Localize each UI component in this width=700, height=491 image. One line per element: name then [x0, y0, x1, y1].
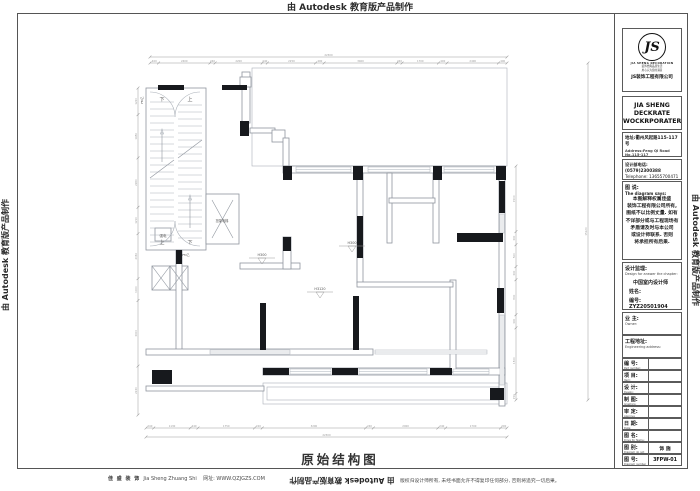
footer-brand: 佳 盛 装 饰 Jia Sheng Zhuang Shi 网址: WWW.QZJ… [108, 475, 265, 482]
dim-value: 240 [262, 59, 267, 63]
cad-sheet: 由 Autodesk 教育版产品制作 由 Autodesk 教育版产品制作 由 … [0, 0, 700, 491]
dim-value: 3000 [134, 330, 138, 337]
notice-line: 本图解释权属佳盛 [625, 196, 679, 203]
column [496, 166, 506, 180]
title-block: JS JIA SHENG DECORATION 装饰经典品质生活 用心只为您的满… [620, 13, 686, 469]
column [283, 166, 292, 180]
owner-cn: 业 主: [625, 315, 679, 322]
plan-label: 上 [159, 239, 164, 246]
row-value-cell [649, 431, 681, 441]
titleblock-row: 制 图:Graphics: [622, 394, 682, 406]
eng-addr-cn: 工程地址: [625, 338, 679, 345]
column [430, 368, 452, 375]
row-label-cn: 项 目: [624, 372, 647, 379]
column [457, 233, 503, 242]
notice-text: 本图解释权属佳盛装饰工程有限公司所有,图纸不以比例丈量. 如有不详部分或与工程现… [625, 196, 679, 246]
level-label: H300 [347, 241, 356, 245]
column [490, 388, 504, 400]
company-line-2: WOCKRPORATERKS [623, 118, 681, 126]
dim-value: 2200 [235, 59, 242, 63]
row-label-cell: 图 名:Drive for Name: [623, 431, 649, 441]
eng-addr-en: Engineering address: [625, 345, 679, 349]
wall [389, 198, 435, 203]
dim-value: 1210 [134, 217, 138, 224]
row-label-cell: 编 号:Part number: [623, 359, 649, 369]
column [260, 303, 266, 350]
supervision-box: 设计监理: Design for answer the chapter: 中国室… [622, 262, 682, 310]
watermark-bottom-flipped: 由 Autodesk 教育版产品制作 [287, 475, 397, 486]
level-label: H300 [257, 253, 266, 257]
dim-value: 240 [397, 59, 402, 63]
plan-label: FM乙 [182, 252, 189, 257]
column [176, 250, 182, 264]
dim-value: 400 [152, 59, 157, 63]
row-label-cn: 日 期: [624, 420, 647, 427]
row-value-cell: 3FPW-01 [649, 455, 681, 465]
column [240, 121, 249, 136]
row-value-cell [649, 359, 681, 369]
logo-company-cn: JS装饰工程有限公司 [623, 74, 681, 80]
row-label-cell: 项 目:Item: [623, 371, 649, 381]
titleblock-row: 日 期:Date: [622, 418, 682, 430]
plan-label: 担架电梯 [216, 218, 230, 223]
column [158, 85, 184, 90]
notice-line: 不详部分或与工程现场有 [625, 218, 679, 225]
supervision-label-cn: 设计监理: [625, 265, 679, 272]
row-value-cell [649, 419, 681, 429]
titleblock-row: 编 号:Part number: [622, 358, 682, 370]
footer-brand-en: Jia Sheng Zhuang Shi [143, 476, 196, 482]
row-value-cell [649, 383, 681, 393]
row-value-cell [649, 371, 681, 381]
company-logo-icon: JS [638, 33, 666, 61]
titleblock-row: 审 定:Approve officially: [622, 406, 682, 418]
diagram-says-box: 图 说: The diagram says: 本图解释权属佳盛装饰工程有限公司所… [622, 181, 682, 260]
row-label-cn: 图 别: [624, 444, 647, 451]
dim-value: 240 [192, 424, 197, 428]
dim-value: 300 [512, 270, 516, 275]
dim-value: 1700 [470, 424, 477, 428]
dim-value: 3400 [357, 59, 364, 63]
dim-value: 300 [512, 318, 516, 323]
dim-value: 240 [367, 424, 372, 428]
column [353, 296, 359, 350]
phone-cn: 设计部电话: (0579)2300388 [625, 162, 679, 173]
owner-en: Owner: [625, 322, 679, 326]
footer-copyright: 版权归设计师所有, 未经书面允许不得复印任何部分, 否则将追究一切后果。 [400, 477, 560, 484]
footer-brand-cn: 佳 盛 装 饰 [108, 476, 140, 482]
plan-label: 强电 [160, 233, 167, 238]
titleblock-row: 图 别:Diagram do not饰 施 [622, 442, 682, 454]
dim-value: 240 [439, 424, 444, 428]
plan-label: 下 [187, 240, 192, 246]
dim-value: 1700 [417, 59, 424, 63]
eng-addr-box: 工程地址: Engineering address: [622, 335, 682, 358]
thin-outline [267, 387, 503, 400]
notice-line: 图纸不以比例丈量. 如有 [625, 210, 679, 217]
wall [357, 282, 453, 287]
thin-outline [252, 68, 507, 166]
phone-en: Telephone: 13655700471 [625, 174, 679, 179]
row-label-cn: 制 图: [624, 396, 647, 403]
plan-title: 原始结构图 [260, 449, 420, 468]
wall [450, 280, 456, 372]
row-value-cell: 饰 施 [649, 443, 681, 453]
footer-site: 网址: WWW.QZJGZS.COM [203, 476, 265, 482]
dim-value: 500 [512, 253, 516, 258]
column [263, 368, 289, 375]
dim-value: 22300 [324, 53, 333, 57]
notice-line: 或设计师联系. 否则 [625, 232, 679, 239]
address-en: Address:Feng Qi Road No.115-117 [625, 149, 679, 157]
supervision-line-2: 姓名: [629, 288, 679, 295]
row-label-en: Diagram number [624, 463, 647, 466]
dim-value: 1220 [134, 98, 138, 105]
dim-value: 2260 [134, 179, 138, 186]
row-value-cell [649, 407, 681, 417]
column [499, 181, 505, 213]
dim-value: 15120 [584, 227, 588, 236]
wall [283, 138, 289, 166]
row-label-cell: 日 期:Date: [623, 419, 649, 429]
column [497, 288, 504, 313]
row-label-cn: 图 名: [624, 432, 647, 439]
dim-value: 240 [210, 59, 215, 63]
address-box: 地址:衢州风起路115-117号 Address:Feng Qi Road No… [622, 132, 682, 157]
logo-box: JS JIA SHENG DECORATION 装饰经典品质生活 用心只为您的满… [622, 28, 682, 92]
titleblock-row: 设 计:Design: [622, 382, 682, 394]
plan-label: FM乙 [139, 96, 144, 103]
supervision-label-en: Design for answer the chapter: [625, 272, 679, 276]
row-label-cell: 设 计:Design: [623, 383, 649, 393]
dim-value: 22300 [322, 433, 331, 437]
dim-value: 2400 [469, 59, 476, 63]
dim-value: 1980 [134, 133, 138, 140]
level-label: H3120 [314, 287, 325, 291]
dim-value: 240 [147, 424, 152, 428]
dim-value: 800 [512, 294, 516, 299]
dim-value: 2060 [134, 253, 138, 260]
dim-value: 1000 [134, 286, 138, 293]
dim-value: 400 [317, 59, 322, 63]
logo-slogan-2: 用心只为您的满意 [623, 69, 681, 73]
wall [146, 88, 206, 250]
address-cn: 地址:衢州风起路115-117号 [625, 135, 679, 147]
floor-plan: H300H300H3120担架电梯强电下上上下FM乙FM乙22300400240… [0, 0, 700, 491]
titleblock-row: 图 名:Drive for Name: [622, 430, 682, 442]
wall [250, 128, 275, 133]
plan-label: 下 [159, 97, 164, 103]
column [152, 370, 172, 384]
column [222, 85, 247, 90]
wall [146, 386, 264, 391]
row-label-cell: 图 号:Diagram number [623, 455, 649, 465]
dim-value: 1130 [169, 424, 176, 428]
row-label-cell: 审 定:Approve officially: [623, 407, 649, 417]
dim-value: 200 [501, 424, 506, 428]
level-triangle-icon [316, 292, 324, 298]
dim-value: 2000 [402, 424, 409, 428]
owner-box: 业 主: Owner: [622, 312, 682, 335]
dim-value: 150 [512, 394, 516, 399]
row-label-cn: 设 计: [624, 384, 647, 391]
notice-line: 装饰工程有限公司所有, [625, 203, 679, 210]
row-value-cell [649, 395, 681, 405]
dim-value: 2400 [181, 59, 188, 63]
dim-value: 240 [256, 424, 261, 428]
dim-value: 2250 [288, 59, 295, 63]
company-line-1: JIA SHENG DECKRATE [623, 102, 681, 118]
dim-value: 300 [512, 235, 516, 240]
level-triangle-icon [348, 246, 356, 252]
row-label-cn: 图 号: [624, 456, 647, 463]
dim-value: 1500 [512, 195, 516, 202]
dim-value: 400 [440, 59, 445, 63]
diagram-says-cn: 图 说: [625, 184, 679, 191]
column [353, 166, 363, 180]
company-name-box: JIA SHENG DECKRATE WOCKRPORATERKS [622, 96, 682, 130]
notice-line: 将承担所有后果. [625, 239, 679, 246]
dim-value: 1750 [223, 424, 230, 428]
phone-box: 设计部电话: (0579)2300388 Telephone: 13655700… [622, 159, 682, 180]
dim-value: 1500 [512, 357, 516, 364]
supervision-line-3: 编号: ZYZ20501904 [629, 297, 679, 310]
dim-value: 2240 [134, 387, 138, 394]
titleblock-row: 项 目:Item: [622, 370, 682, 382]
dim-value: 400 [500, 59, 505, 63]
column [433, 166, 442, 180]
row-label-cell: 图 别:Diagram do not [623, 443, 649, 453]
notice-line: 矛盾请及时与本公司 [625, 225, 679, 232]
row-label-cell: 制 图:Graphics: [623, 395, 649, 405]
column [283, 237, 291, 251]
plan-label: 上 [187, 96, 192, 103]
wall [433, 173, 439, 243]
wall [176, 250, 182, 353]
column [357, 216, 363, 258]
wall [387, 173, 392, 243]
dim-value: 3200 [311, 424, 318, 428]
column [332, 368, 358, 375]
thin-outline [263, 383, 507, 404]
titleblock-row: 图 号:Diagram number3FPW-01 [622, 454, 682, 466]
row-label-cn: 编 号: [624, 360, 647, 367]
row-label-cn: 审 定: [624, 408, 647, 415]
supervision-line-1: 中国室内设计师 [633, 279, 679, 286]
